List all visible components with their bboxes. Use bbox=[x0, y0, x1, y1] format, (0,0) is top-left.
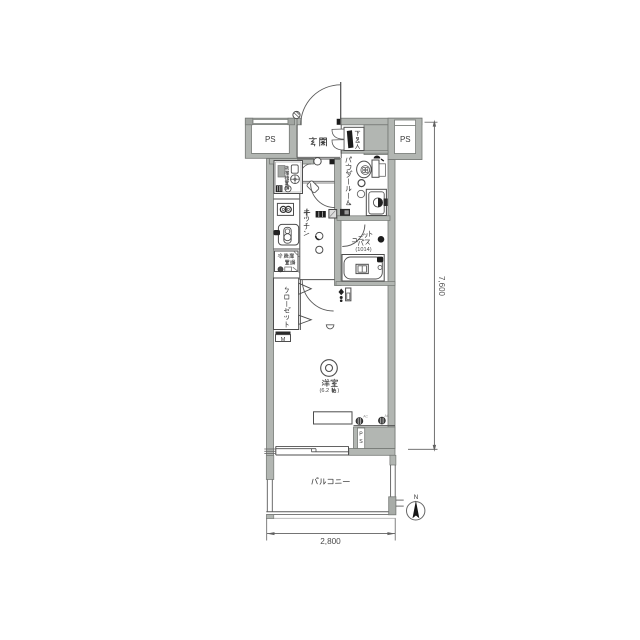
svg-text:(6.2: (6.2 bbox=[319, 388, 329, 394]
svg-text:N: N bbox=[414, 494, 418, 501]
svg-text:S: S bbox=[359, 439, 363, 445]
svg-text:AC: AC bbox=[363, 414, 368, 418]
svg-text:M: M bbox=[281, 337, 286, 343]
svg-text:7,600: 7,600 bbox=[437, 276, 446, 297]
svg-text:PS: PS bbox=[265, 135, 276, 144]
svg-text:2,800: 2,800 bbox=[320, 537, 341, 546]
svg-text:P: P bbox=[359, 431, 363, 437]
svg-text:(1014): (1014) bbox=[355, 247, 371, 253]
svg-text:): ) bbox=[337, 388, 339, 394]
svg-text:AC: AC bbox=[385, 414, 390, 418]
svg-text:PS: PS bbox=[400, 135, 411, 144]
